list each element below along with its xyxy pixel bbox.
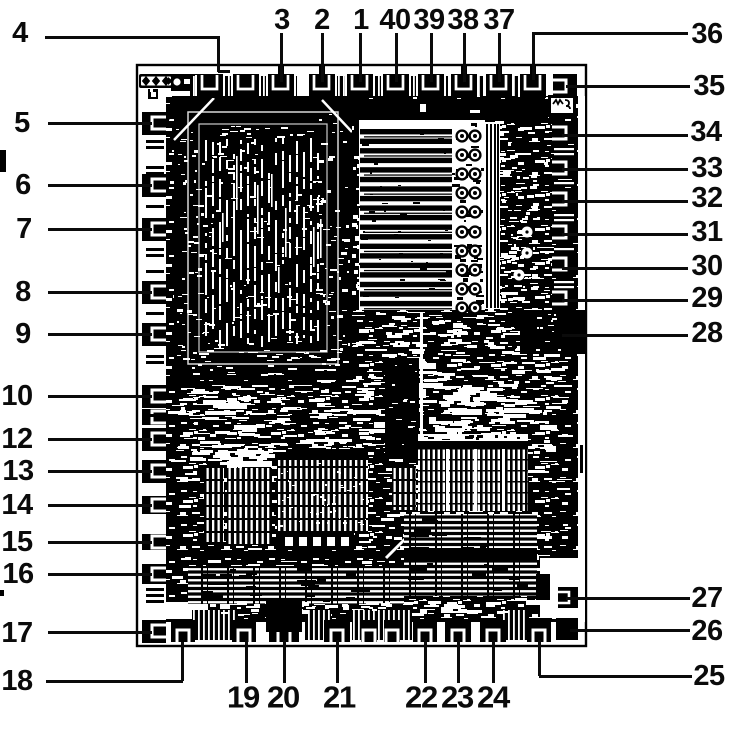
svg-text:18: 18 — [1, 665, 33, 697]
svg-text:27: 27 — [691, 582, 722, 614]
svg-text:22: 22 — [405, 680, 437, 715]
svg-text:15: 15 — [1, 526, 33, 558]
svg-text:30: 30 — [691, 250, 722, 282]
svg-text:12: 12 — [1, 423, 32, 455]
svg-text:5: 5 — [14, 107, 30, 139]
svg-text:23: 23 — [441, 680, 474, 715]
svg-text:20: 20 — [267, 680, 299, 715]
svg-text:39: 39 — [413, 4, 445, 36]
svg-text:37: 37 — [483, 4, 514, 36]
svg-text:32: 32 — [691, 182, 722, 214]
svg-text:25: 25 — [693, 660, 725, 692]
svg-text:36: 36 — [691, 18, 723, 50]
svg-text:1: 1 — [353, 4, 369, 36]
svg-text:28: 28 — [691, 317, 723, 349]
svg-text:9: 9 — [15, 318, 31, 350]
svg-text:33: 33 — [691, 152, 723, 184]
svg-text:6: 6 — [15, 169, 31, 201]
svg-text:17: 17 — [1, 617, 32, 649]
svg-text:2: 2 — [314, 4, 330, 36]
svg-text:14: 14 — [1, 489, 33, 521]
svg-text:24: 24 — [477, 680, 511, 715]
svg-text:8: 8 — [15, 276, 31, 308]
svg-text:16: 16 — [2, 558, 34, 590]
svg-text:4: 4 — [12, 17, 28, 49]
svg-text:13: 13 — [2, 455, 34, 487]
svg-text:7: 7 — [16, 213, 32, 245]
svg-text:34: 34 — [690, 116, 722, 148]
svg-text:38: 38 — [447, 4, 479, 36]
svg-text:31: 31 — [691, 216, 723, 248]
svg-text:21: 21 — [323, 680, 356, 715]
svg-text:40: 40 — [379, 4, 410, 36]
svg-text:10: 10 — [1, 380, 32, 412]
svg-text:29: 29 — [691, 282, 723, 314]
svg-text:19: 19 — [227, 680, 260, 715]
svg-text:26: 26 — [691, 615, 723, 647]
svg-text:3: 3 — [274, 4, 290, 36]
svg-text:35: 35 — [693, 70, 725, 102]
